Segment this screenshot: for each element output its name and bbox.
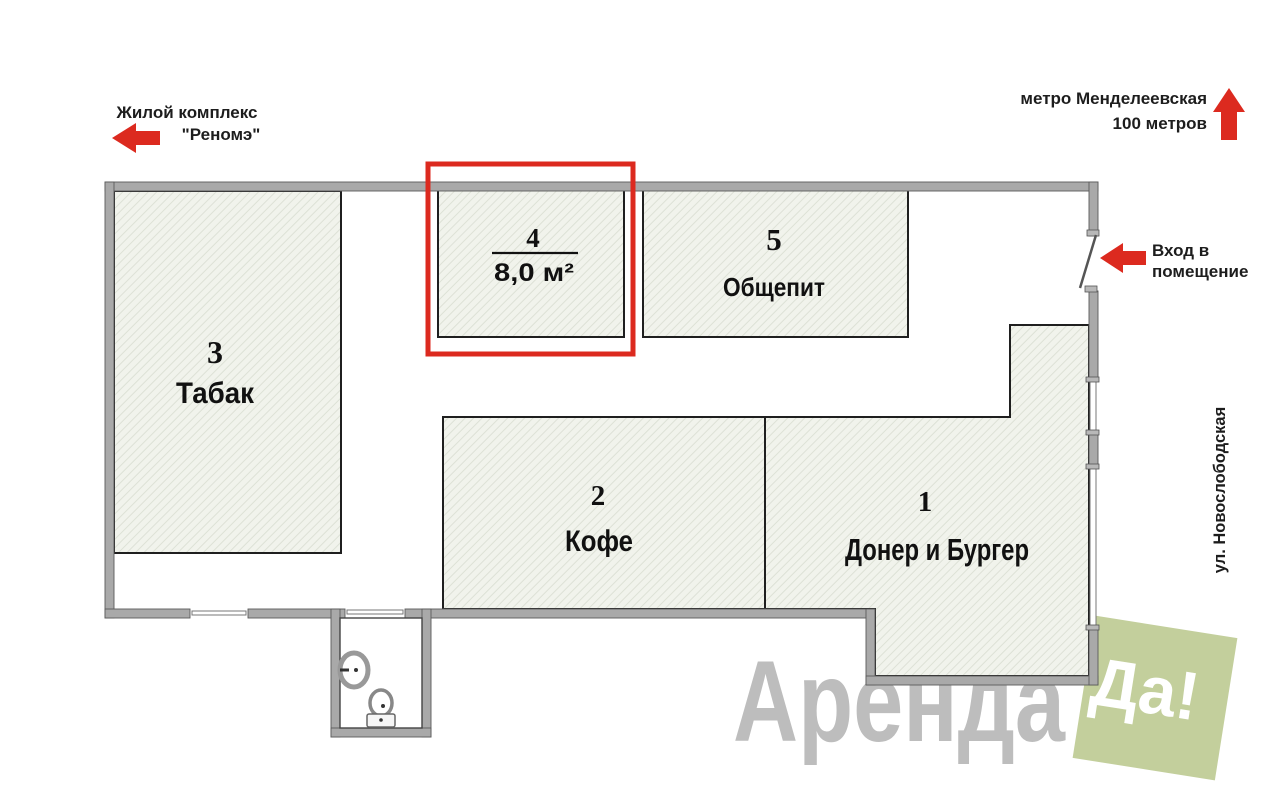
room-2-number: 2 [591, 480, 606, 512]
wall-right-seg1 [1089, 182, 1098, 236]
room-5-shape [643, 189, 908, 337]
wall-top [105, 182, 1098, 191]
wall-right-seg3 [1089, 629, 1098, 685]
room-1-name: Донер и Бургер [845, 532, 1029, 567]
entrance-door-jamb-bottom [1085, 286, 1097, 292]
entrance-door-jamb-top [1087, 230, 1099, 236]
bathroom [331, 609, 431, 737]
street-label: ул. Новослободская [1211, 407, 1229, 573]
wall-right-seg2 [1089, 291, 1098, 381]
annotation-entrance: Вход в помещение [1100, 241, 1248, 281]
wall-right-pillar [1089, 434, 1098, 468]
room-5-number: 5 [766, 222, 782, 257]
metro-line2: 100 метров [1113, 114, 1207, 133]
window-cap-3 [1086, 464, 1099, 469]
room-3-name: Табак [176, 377, 255, 410]
arrow-up-icon [1213, 88, 1245, 140]
metro-line1: метро Менделеевская [1020, 89, 1207, 108]
room-3-number: 3 [207, 334, 223, 370]
sink-drain-dot [354, 668, 358, 672]
wall-bottom-seg1 [105, 609, 190, 618]
door-opening-left [192, 611, 246, 615]
window-cap-2 [1086, 430, 1099, 435]
wall-bottom-seg2 [248, 609, 345, 618]
room-1-number: 1 [918, 486, 933, 518]
window-cap-4 [1086, 625, 1099, 630]
window-right-2 [1090, 468, 1096, 626]
bathroom-wall-right [422, 609, 431, 737]
annotation-residential-complex: Жилой комплекс "Реномэ" [112, 103, 260, 153]
wall-bottom-seg3 [405, 609, 875, 618]
arrow-left-icon [112, 123, 160, 153]
entrance-line1: Вход в [1152, 241, 1209, 260]
residential-complex-line2: "Реномэ" [182, 125, 261, 144]
wall-bottom-right [866, 676, 1098, 685]
residential-complex-line1: Жилой комплекс [115, 103, 257, 122]
room-4-number: 4 [526, 223, 540, 253]
floor-plan-image: Аренда Да! [0, 0, 1265, 800]
entrance-line2: помещение [1152, 262, 1248, 281]
toilet-bowl-dot [381, 704, 385, 708]
wall-step [866, 609, 875, 685]
room-5-name: Общепит [723, 272, 825, 302]
window-cap-1 [1086, 377, 1099, 382]
rooms [114, 189, 1089, 676]
room-4-area: 8,0 м² [494, 259, 574, 287]
window-right-1 [1090, 381, 1096, 434]
toilet-bowl-icon [370, 690, 392, 716]
room-2-name: Кофе [565, 525, 633, 558]
entrance-door-leaf [1080, 235, 1096, 288]
room-3-shape [114, 191, 341, 553]
wall-left [105, 182, 114, 618]
bathroom-wall-bottom [331, 728, 431, 737]
toilet-tank-dot [379, 718, 383, 722]
bathroom-door-opening [347, 610, 403, 614]
room-2-shape [443, 417, 765, 609]
arrow-left-entrance-icon [1100, 243, 1146, 273]
annotation-metro: метро Менделеевская 100 метров [1020, 88, 1245, 140]
